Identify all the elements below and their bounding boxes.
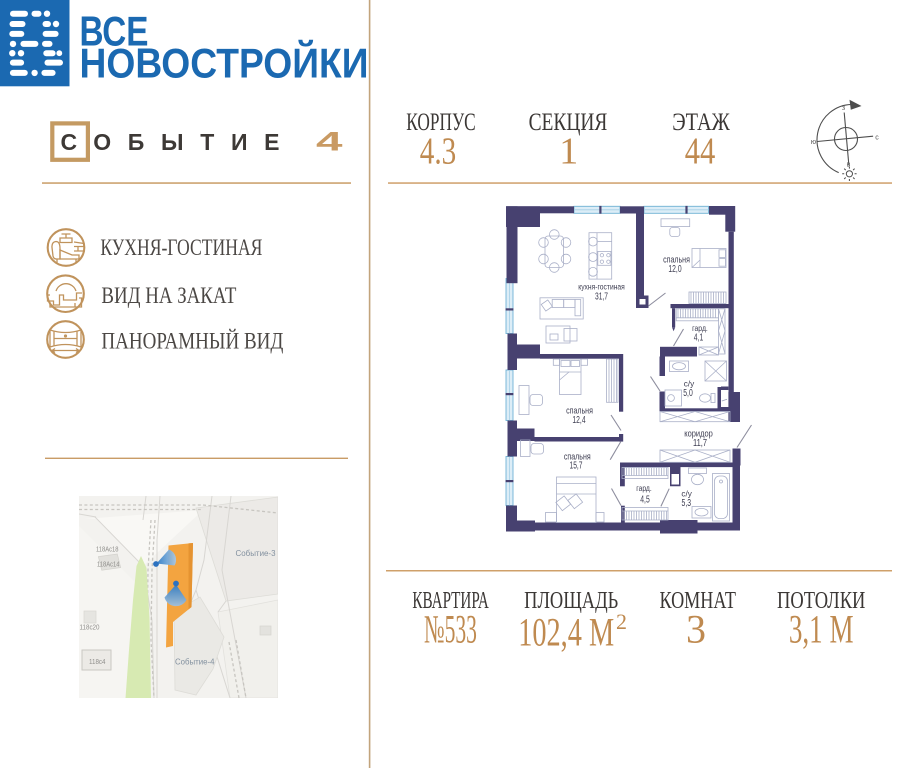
svg-text:№533: №533 <box>424 606 477 651</box>
svg-text:4,5: 4,5 <box>640 494 650 505</box>
svg-text:ВИД НА ЗАКАТ: ВИД НА ЗАКАТ <box>101 283 236 308</box>
svg-text:12,4: 12,4 <box>572 415 586 426</box>
svg-text:15,7: 15,7 <box>570 460 583 471</box>
svg-text:31,7: 31,7 <box>595 291 608 302</box>
svg-text:11,7: 11,7 <box>693 438 707 449</box>
svg-text:СОБЫТИЕ: СОБЫТИЕ <box>61 129 280 155</box>
svg-text:кухня-гостиная: кухня-гостиная <box>578 282 625 292</box>
svg-text:3: 3 <box>686 606 706 651</box>
svg-text:НОВОСТРОЙКИ: НОВОСТРОЙКИ <box>80 39 369 86</box>
svg-text:Событие-3: Событие-3 <box>236 548 276 558</box>
svg-text:1: 1 <box>559 131 578 173</box>
svg-text:2: 2 <box>616 609 627 634</box>
svg-text:ю: ю <box>811 139 816 146</box>
svg-text:118Ас18: 118Ас18 <box>96 545 119 554</box>
svg-text:ПАНОРАМНЫЙ ВИД: ПАНОРАМНЫЙ ВИД <box>101 328 283 353</box>
svg-text:4,1: 4,1 <box>694 332 704 343</box>
svg-text:102,4 М: 102,4 М <box>518 609 614 654</box>
svg-text:в: в <box>847 162 851 169</box>
svg-text:118Ас14: 118Ас14 <box>97 560 120 569</box>
svg-text:5,0: 5,0 <box>683 388 693 399</box>
svg-text:4.3: 4.3 <box>420 131 457 173</box>
svg-text:44: 44 <box>685 131 716 173</box>
svg-text:гард.: гард. <box>636 483 652 493</box>
svg-text:с/у: с/у <box>684 379 695 389</box>
svg-text:118с4: 118с4 <box>89 657 106 666</box>
svg-text:5,3: 5,3 <box>682 498 692 509</box>
svg-text:3,1 М: 3,1 М <box>789 606 854 651</box>
svg-text:Событие-4: Событие-4 <box>175 657 215 667</box>
svg-text:118с20: 118с20 <box>80 623 100 632</box>
svg-text:4: 4 <box>316 126 343 156</box>
svg-text:КУХНЯ-ГОСТИНАЯ: КУХНЯ-ГОСТИНАЯ <box>100 235 262 260</box>
svg-text:с: с <box>875 135 879 142</box>
svg-text:з: з <box>842 105 845 112</box>
svg-text:12,0: 12,0 <box>668 264 682 275</box>
